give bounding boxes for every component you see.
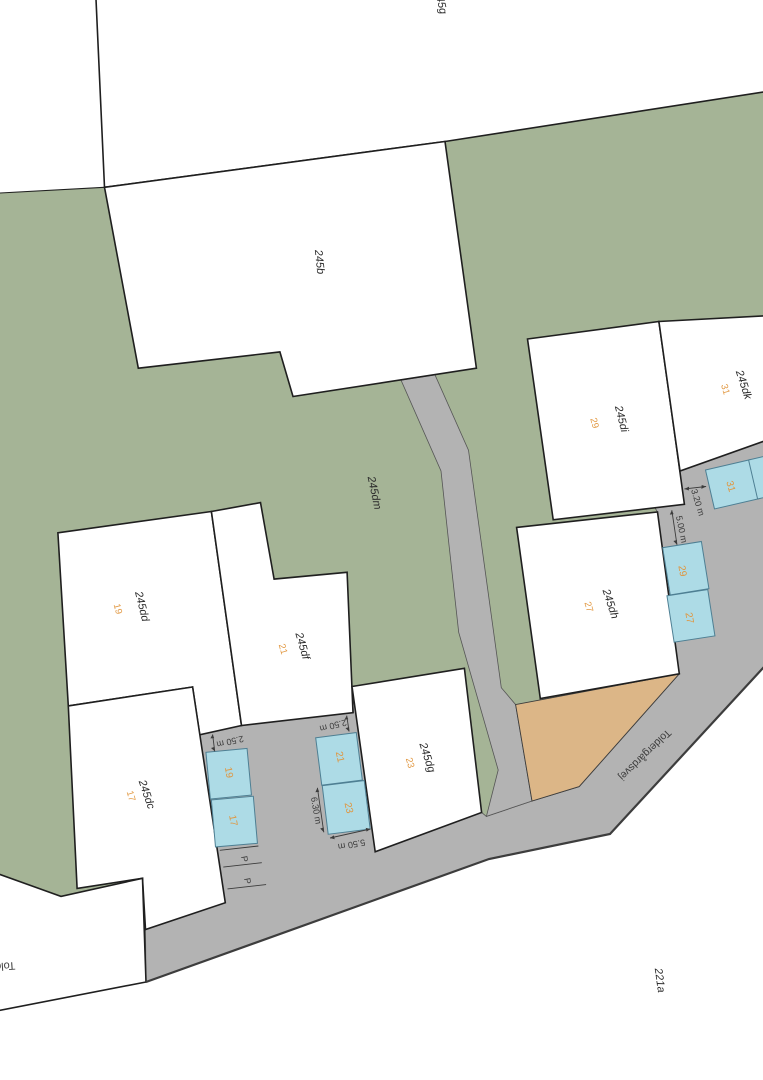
svg-text:221a: 221a	[652, 966, 667, 993]
